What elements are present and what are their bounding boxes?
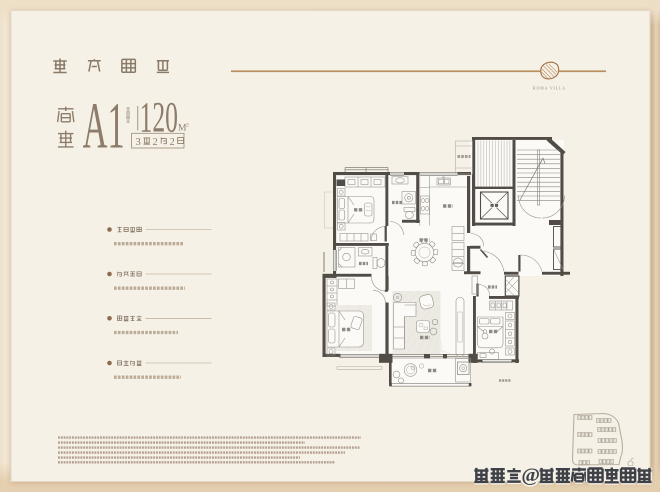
svg-text:2: 2	[153, 137, 158, 148]
svg-text:ROMA VILLA: ROMA VILLA	[533, 87, 566, 91]
svg-text:2: 2	[186, 123, 189, 129]
svg-text:3: 3	[136, 137, 141, 148]
svg-text:120: 120	[140, 95, 179, 142]
svg-text:@: @	[521, 465, 540, 487]
svg-text:· · · · · · ·: · · · · · · ·	[541, 92, 559, 96]
svg-text:2: 2	[170, 137, 175, 148]
svg-text:A1: A1	[83, 90, 125, 163]
